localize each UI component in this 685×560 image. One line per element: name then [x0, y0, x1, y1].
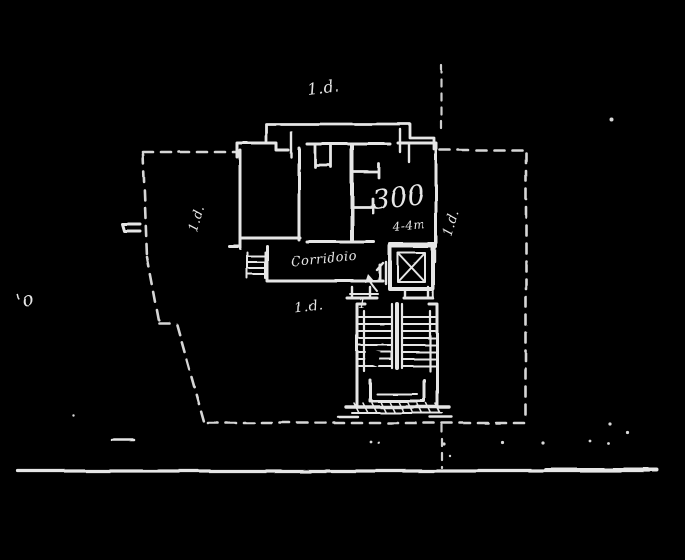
dimension-main: 300: [370, 180, 426, 216]
speck: [607, 442, 610, 445]
boundary-dashed-line: [143, 150, 526, 423]
entry-steps: [247, 252, 265, 278]
speck: [500, 440, 503, 443]
note-bottom: 1.d.: [293, 297, 324, 317]
speck: [625, 430, 628, 433]
step-treads: [247, 252, 265, 278]
elevator-shaft: [390, 246, 433, 298]
annotations: 1.d. 1.d. 1.d. 1.d. 300 4-4m Corridoio '…: [14, 76, 463, 317]
stair-smudge: [365, 349, 381, 367]
speck: [589, 440, 592, 443]
note-left: 1.d.: [186, 204, 208, 234]
staircase: [338, 304, 452, 417]
ground-baseline: [18, 470, 657, 471]
floor-plan-sketch: 1.d. 1.d. 1.d. 1.d. 300 4-4m Corridoio '…: [0, 0, 685, 560]
floor-plan-sketch-canvas: 1.d. 1.d. 1.d. 1.d. 300 4-4m Corridoio '…: [0, 0, 685, 560]
note-top: 1.d.: [306, 76, 341, 99]
elevator-x-box: [398, 253, 425, 282]
speck: [442, 442, 445, 445]
speck: [73, 415, 75, 417]
speck: [449, 455, 451, 457]
speck: [608, 422, 611, 425]
speck: [378, 442, 381, 445]
margin-note: 'o: [14, 287, 36, 313]
stair-landing: [370, 380, 424, 401]
note-right: 1.d.: [440, 208, 462, 238]
speck: [610, 118, 614, 122]
interior-piers: [315, 145, 379, 213]
dimension-sub: 4-4m: [391, 217, 426, 234]
corridor-label: Corridoio: [290, 249, 358, 270]
boundary-hook-mark: [122, 224, 140, 231]
speck: [541, 441, 544, 444]
wall-ticks: [291, 129, 435, 298]
stair-number: 1: [358, 297, 367, 312]
speck: [370, 441, 373, 444]
